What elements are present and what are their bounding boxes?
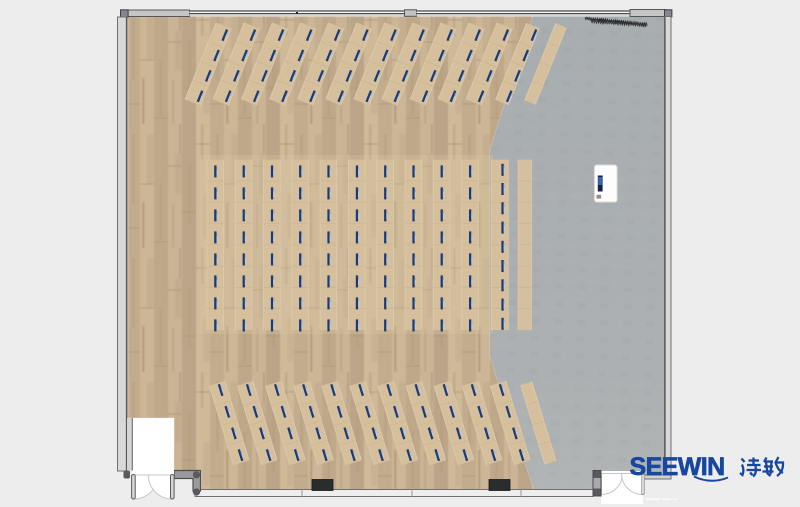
svg-text:SEEWIN: SEEWIN (630, 453, 725, 481)
